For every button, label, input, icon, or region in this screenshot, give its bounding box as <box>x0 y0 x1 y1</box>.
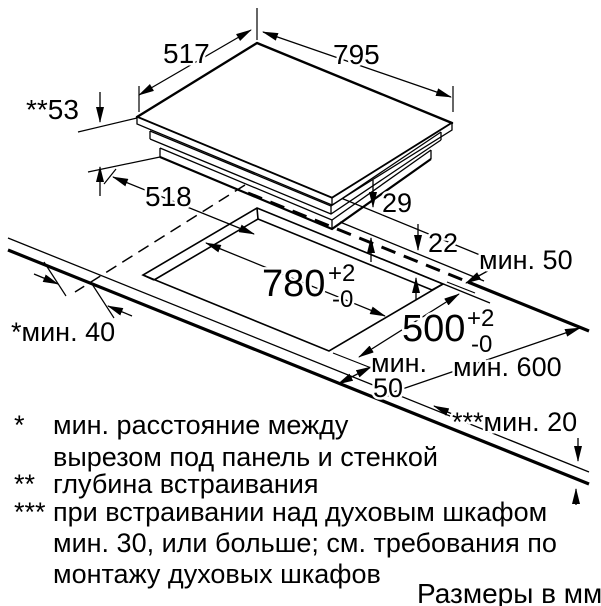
footnote-1-line2: вырезом под панель и стенкой <box>53 442 438 472</box>
dim-min20-label: ***мин. 20 <box>452 407 577 437</box>
dim-780-tol-plus: +2 <box>328 260 355 287</box>
dim-min50-back-label: мин. 50 <box>479 245 573 275</box>
footnote-2-line1: глубина встраивания <box>53 469 318 499</box>
footnote-2-marker: ** <box>14 469 36 499</box>
dim-29-label: 29 <box>382 188 412 218</box>
dim-517-label: 517 <box>163 38 210 69</box>
dim-53-label: **53 <box>26 94 79 125</box>
tick-53-bottom <box>88 157 160 172</box>
installation-diagram-page: 517 795 **53 518 29 22 780 +2 -0 500 +2 … <box>0 0 601 606</box>
dim-518-label: 518 <box>145 181 192 212</box>
footnote-3-marker: *** <box>14 497 46 527</box>
dim-22-label: 22 <box>428 228 458 258</box>
footnote-3-line2: мин. 30, или больше; см. требования по <box>53 528 557 558</box>
dim-795-label: 795 <box>333 39 380 70</box>
footnote-3-line3: монтажу духовых шкафов <box>53 559 381 589</box>
dim-500-label: 500 <box>402 308 465 350</box>
units-note: Размеры в мм <box>417 578 601 606</box>
footnote-3-line1: при встраивании над духовым шкафом <box>53 497 547 527</box>
dim-min40-label: *мин. 40 <box>11 317 115 347</box>
footnote-1-line1: мин. расстояние между <box>53 410 349 440</box>
dim-min50-front-label-line2: 50 <box>373 373 403 403</box>
tick-518 <box>104 169 116 184</box>
footnotes: * мин. расстояние между вырезом под пане… <box>14 410 601 606</box>
dim-500-tol-plus: +2 <box>467 305 494 332</box>
tick-53-top <box>78 118 137 132</box>
dim-780-tol-minus: -0 <box>332 286 353 313</box>
footnote-1-marker: * <box>14 410 25 440</box>
dim-min600-label: мин. 600 <box>453 352 562 382</box>
dim-780-label: 780 <box>262 263 325 305</box>
dim-line-min50-front <box>338 367 371 384</box>
installation-diagram: 517 795 **53 518 29 22 780 +2 -0 500 +2 … <box>0 0 601 606</box>
